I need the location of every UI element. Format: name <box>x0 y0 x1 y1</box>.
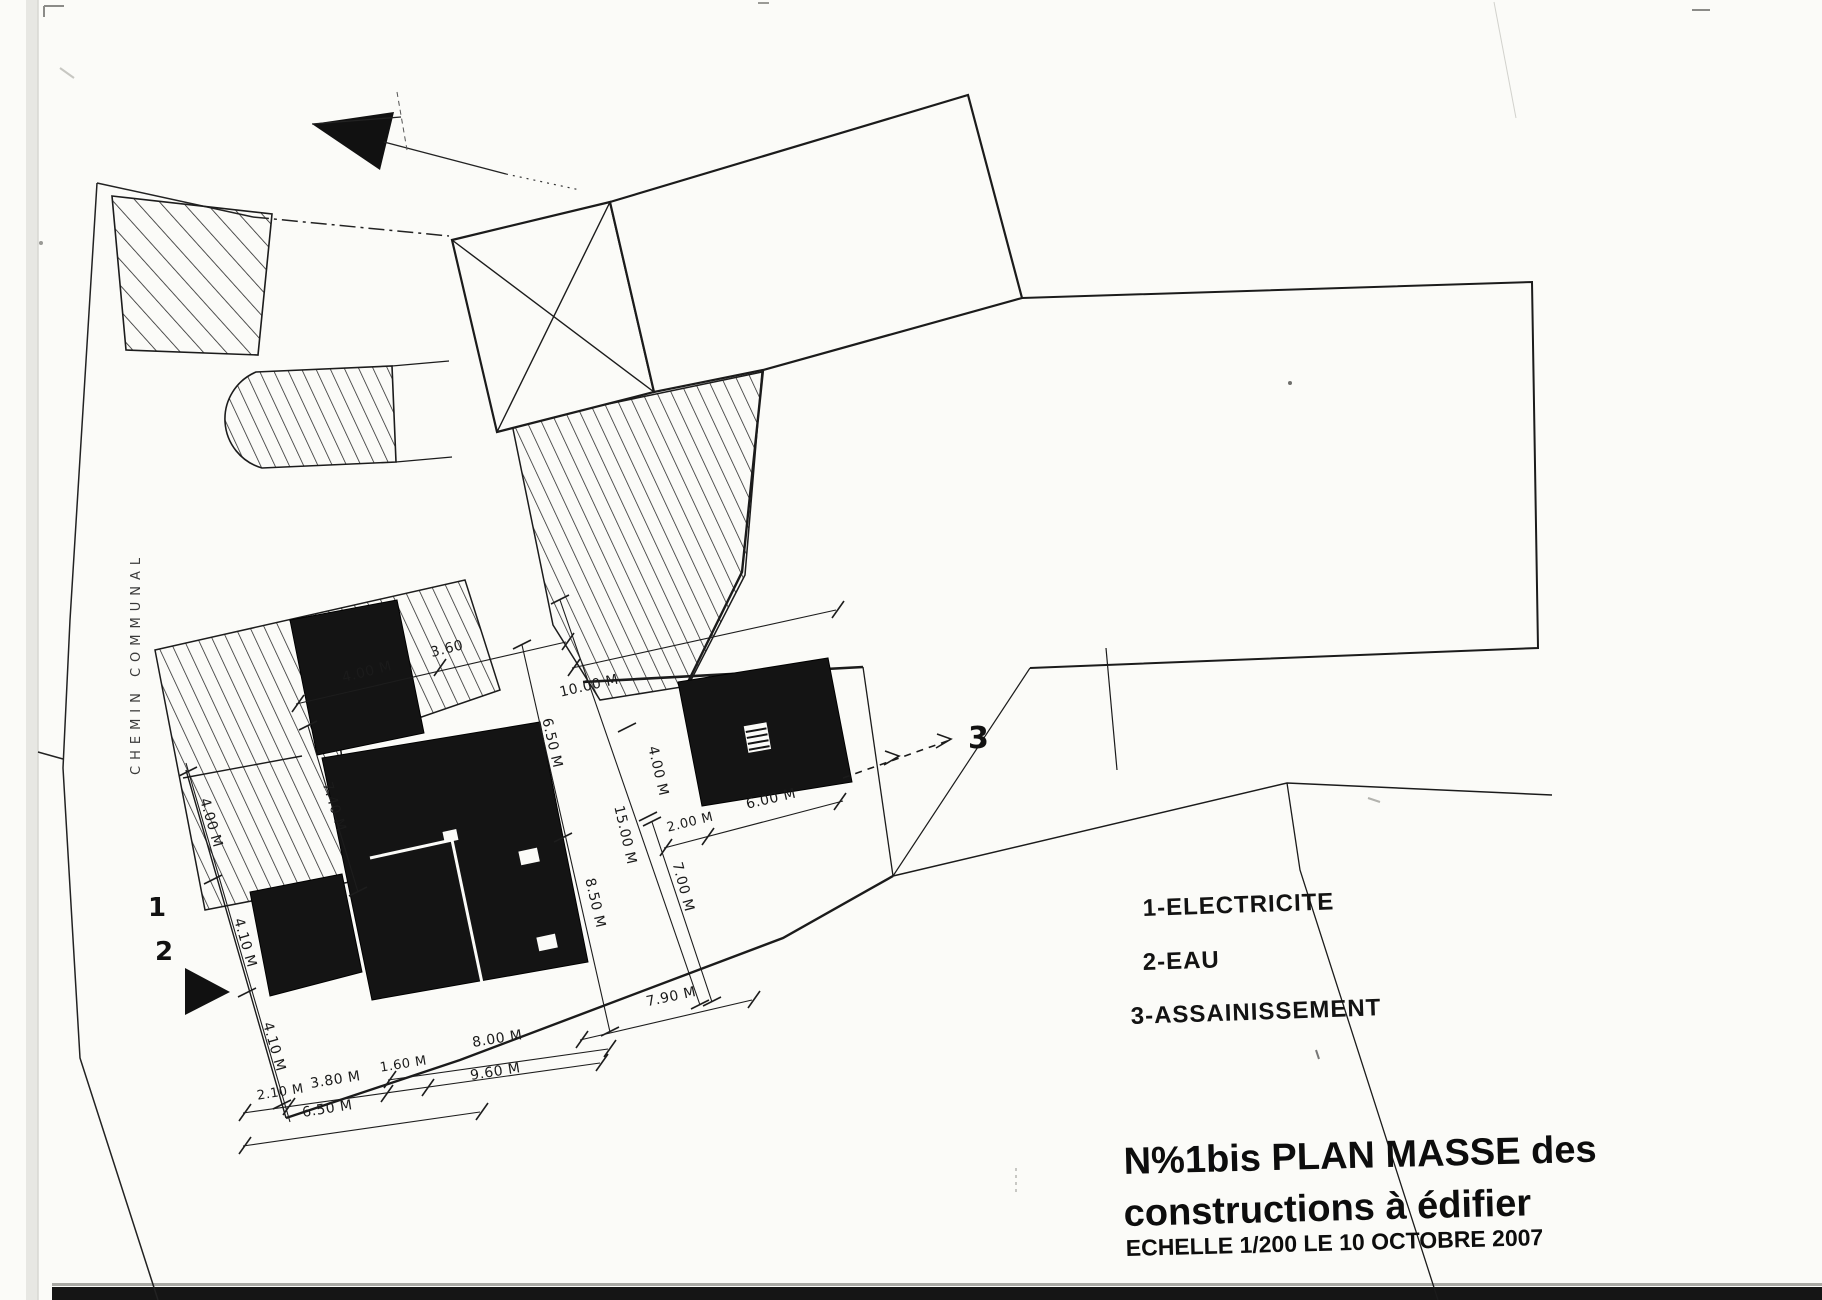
road-label: CHEMIN COMMUNAL <box>129 552 144 775</box>
hatched-capsule-structure <box>225 366 396 468</box>
dimension-label: 15.00 M <box>610 804 639 866</box>
marker-3: 3 <box>968 721 989 756</box>
hatched-building-topleft <box>112 196 272 355</box>
assainissement-arrow-icon <box>843 734 951 778</box>
marker-1: 1 <box>148 893 166 923</box>
road-tick <box>38 752 63 759</box>
legend-item-assainissement: 3-ASSAINISSEMENT <box>1130 994 1381 1030</box>
sewage-hatch-symbol <box>744 722 771 753</box>
right-parcel-boundary <box>1022 282 1538 668</box>
marker-2: 2 <box>155 937 173 967</box>
dimension-label: 4.10 M <box>259 1020 288 1073</box>
boundary-south <box>893 783 1552 876</box>
legend-item-eau: 2-EAU <box>1142 946 1220 976</box>
dimension-label: 7.00 M <box>669 860 698 913</box>
title-block: N%1bis PLAN MASSE des constructions à éd… <box>1123 1129 1597 1261</box>
north-arrow <box>312 92 580 190</box>
plan-title-line1: N%1bis PLAN MASSE des <box>1123 1129 1597 1183</box>
dimension-label: 4.10 M <box>230 916 259 969</box>
dimension-label: 2.00 M <box>665 810 715 836</box>
plot-limit-dashdot <box>253 217 449 236</box>
corner-registration-mark <box>44 6 64 17</box>
dimension-label: 3.80 M <box>309 1068 362 1092</box>
dimension-label: 4.00 M <box>644 745 671 798</box>
dimension-label: 6.50 M <box>301 1097 354 1121</box>
opening <box>443 830 458 842</box>
water-pointer-icon <box>185 968 230 1015</box>
paper-crease <box>1494 2 1516 118</box>
scanned-site-plan: CHEMIN COMMUNAL <box>0 0 1822 1300</box>
plan-drawing: CHEMIN COMMUNAL <box>0 0 1822 1300</box>
building-top-right <box>610 95 1022 392</box>
left-paper-edge <box>26 0 38 1300</box>
dimension-label: 8.00 M <box>471 1027 524 1051</box>
bottom-scan-bar <box>52 1287 1822 1300</box>
hatch-area-middle <box>512 372 762 700</box>
legend: 1-ELECTRICITE 2-EAU 3-ASSAINISSEMENT <box>1130 888 1381 1030</box>
dimension-label: 9.60 M <box>469 1060 522 1084</box>
black-building-left <box>250 874 362 996</box>
fence-line <box>1106 648 1117 770</box>
legend-item-electricite: 1-ELECTRICITE <box>1142 888 1335 922</box>
existing-buildings <box>112 196 452 468</box>
